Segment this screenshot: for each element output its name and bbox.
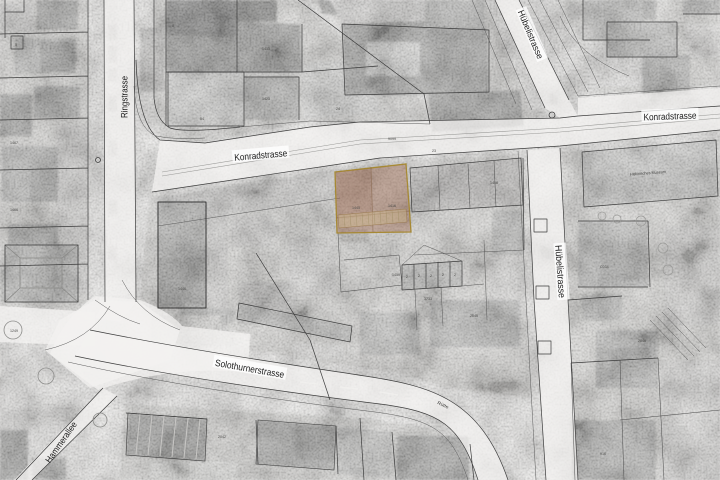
svg-text:1466: 1466 [10, 208, 18, 212]
svg-text:Konradstrasse: Konradstrasse [643, 111, 696, 124]
svg-text:Ringstrasse: Ringstrasse [120, 76, 131, 118]
svg-text:23: 23 [432, 149, 436, 153]
svg-text:1459: 1459 [392, 273, 400, 277]
svg-text:2: 2 [454, 273, 456, 277]
svg-text:2: 2 [430, 274, 432, 278]
svg-text:1418: 1418 [490, 181, 498, 185]
svg-text:2046: 2046 [638, 339, 646, 343]
svg-text:1416: 1416 [388, 204, 396, 208]
svg-text:916: 916 [600, 452, 606, 456]
svg-text:5: 5 [15, 43, 17, 47]
svg-text:2045: 2045 [470, 314, 478, 318]
svg-text:2: 2 [418, 274, 420, 278]
svg-text:1446: 1446 [178, 287, 186, 291]
svg-text:1445: 1445 [352, 206, 360, 210]
svg-text:3733: 3733 [424, 297, 432, 301]
svg-text:C034: C034 [600, 265, 609, 269]
svg-text:1423: 1423 [262, 97, 270, 101]
svg-text:1467: 1467 [10, 141, 18, 145]
svg-text:8: 8 [172, 24, 174, 28]
svg-text:2042: 2042 [218, 435, 226, 439]
svg-text:9099: 9099 [388, 137, 396, 141]
svg-text:1413: 1413 [262, 47, 270, 51]
svg-text:1249: 1249 [10, 329, 18, 333]
svg-text:54: 54 [200, 117, 204, 121]
svg-text:2: 2 [442, 273, 444, 277]
svg-text:2: 2 [406, 275, 408, 279]
svg-text:24: 24 [336, 107, 340, 111]
